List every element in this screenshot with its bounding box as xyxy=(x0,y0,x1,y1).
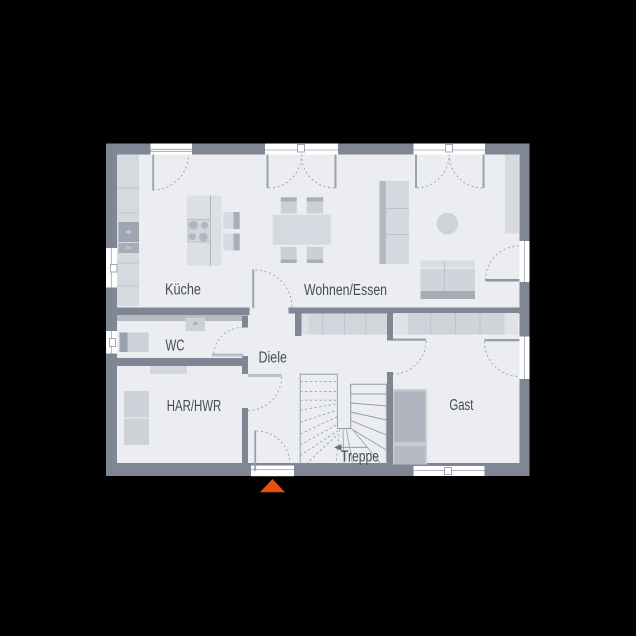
svg-text:Wohnen/Essen: Wohnen/Essen xyxy=(304,282,387,299)
svg-text:Treppe: Treppe xyxy=(341,449,379,466)
svg-text:Diele: Diele xyxy=(258,350,287,367)
svg-text:WC: WC xyxy=(166,338,185,355)
svg-text:HAR/HWR: HAR/HWR xyxy=(167,398,222,415)
svg-text:Küche: Küche xyxy=(165,282,201,299)
svg-text:Gast: Gast xyxy=(449,397,474,414)
